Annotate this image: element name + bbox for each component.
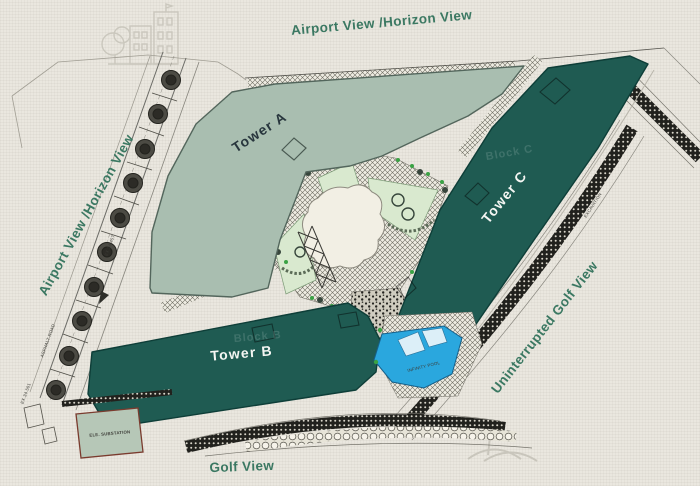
site-master-plan: EXCAVATION: [0, 0, 700, 486]
buildings-watermark-icon: [102, 4, 178, 64]
road-ref-bottom-label: EX.34.501: [20, 382, 32, 405]
golf-view-bottom-label: Golf View: [209, 458, 274, 475]
roadside-parking-boxes: [24, 404, 57, 444]
asphalt-road-label: ASPHALT ROAD: [39, 323, 56, 358]
site-plan-canvas: EXCAVATION: [0, 0, 700, 486]
bottom-road: [184, 413, 532, 456]
airport-view-top-label: Airport View /Horizon View: [290, 7, 472, 38]
pool-area: INFINITY POOL: [374, 312, 482, 398]
